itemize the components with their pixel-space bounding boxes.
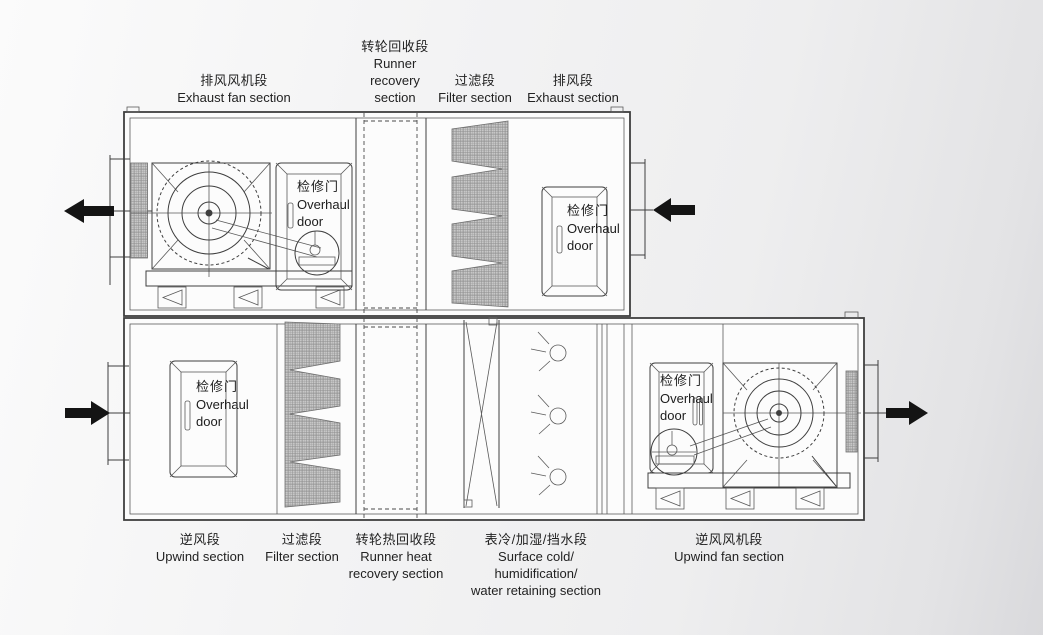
- label-en: Filter section: [438, 89, 512, 106]
- label-zh: 检修门: [297, 178, 350, 196]
- label-overhaul-door-1: 检修门 Overhaul door: [297, 178, 350, 231]
- label-en: Runner recovery section: [361, 55, 429, 106]
- label-en: Overhaul door: [660, 390, 713, 425]
- duct-collar-right: [630, 159, 653, 259]
- grille-icon: [131, 163, 148, 258]
- label-surface-cold-section: 表冷/加湿/挡水段 Surface cold/ humidification/ …: [471, 531, 601, 599]
- label-en: Runner heat recovery section: [349, 548, 444, 582]
- label-exhaust-fan-section: 排风风机段 Exhaust fan section: [177, 72, 290, 106]
- ahu-schematic-page: 排风风机段 Exhaust fan section 转轮回收段 Runner r…: [0, 0, 1043, 635]
- label-en: Overhaul door: [196, 396, 249, 431]
- label-upwind-section: 逆风段 Upwind section: [156, 531, 244, 565]
- label-exhaust-section: 排风段 Exhaust section: [527, 72, 619, 106]
- label-upwind-fan-section: 逆风风机段 Upwind fan section: [674, 531, 784, 565]
- label-zh: 排风段: [527, 72, 619, 89]
- label-overhaul-door-2: 检修门 Overhaul door: [567, 202, 620, 255]
- label-en: Exhaust fan section: [177, 89, 290, 106]
- label-overhaul-door-4: 检修门 Overhaul door: [660, 372, 713, 425]
- label-overhaul-door-3: 检修门 Overhaul door: [196, 378, 249, 431]
- label-filter-section-top: 过滤段 Filter section: [438, 72, 512, 106]
- label-en: Upwind section: [156, 548, 244, 565]
- exhaust-outlet-arrow-icon: [64, 199, 114, 223]
- supply-outlet-arrow-icon: [886, 401, 928, 425]
- label-en: Exhaust section: [527, 89, 619, 106]
- label-zh: 检修门: [567, 202, 620, 220]
- label-zh: 检修门: [196, 378, 249, 396]
- label-zh: 过滤段: [265, 531, 339, 548]
- label-zh: 转轮回收段: [361, 38, 429, 55]
- upwind-unit: [65, 312, 928, 520]
- label-en: Filter section: [265, 548, 339, 565]
- label-runner-heat-recovery-section: 转轮热回收段 Runner heat recovery section: [349, 531, 444, 582]
- label-zh: 过滤段: [438, 72, 512, 89]
- exhaust-inlet-arrow-icon: [653, 198, 695, 222]
- label-zh: 表冷/加湿/挡水段: [471, 531, 601, 548]
- label-zh: 逆风风机段: [674, 531, 784, 548]
- label-en: Surface cold/ humidification/ water reta…: [471, 548, 601, 599]
- label-en: Overhaul door: [567, 220, 620, 255]
- label-zh: 逆风段: [156, 531, 244, 548]
- label-en: Upwind fan section: [674, 548, 784, 565]
- label-filter-section-bottom: 过滤段 Filter section: [265, 531, 339, 565]
- supply-inlet-arrow-icon: [65, 401, 110, 425]
- label-zh: 检修门: [660, 372, 713, 390]
- label-runner-recovery-section: 转轮回收段 Runner recovery section: [361, 38, 429, 106]
- grille-icon: [846, 371, 857, 452]
- duct-collar-right: [864, 360, 888, 462]
- label-zh: 排风风机段: [177, 72, 290, 89]
- label-zh: 转轮热回收段: [349, 531, 444, 548]
- label-en: Overhaul door: [297, 196, 350, 231]
